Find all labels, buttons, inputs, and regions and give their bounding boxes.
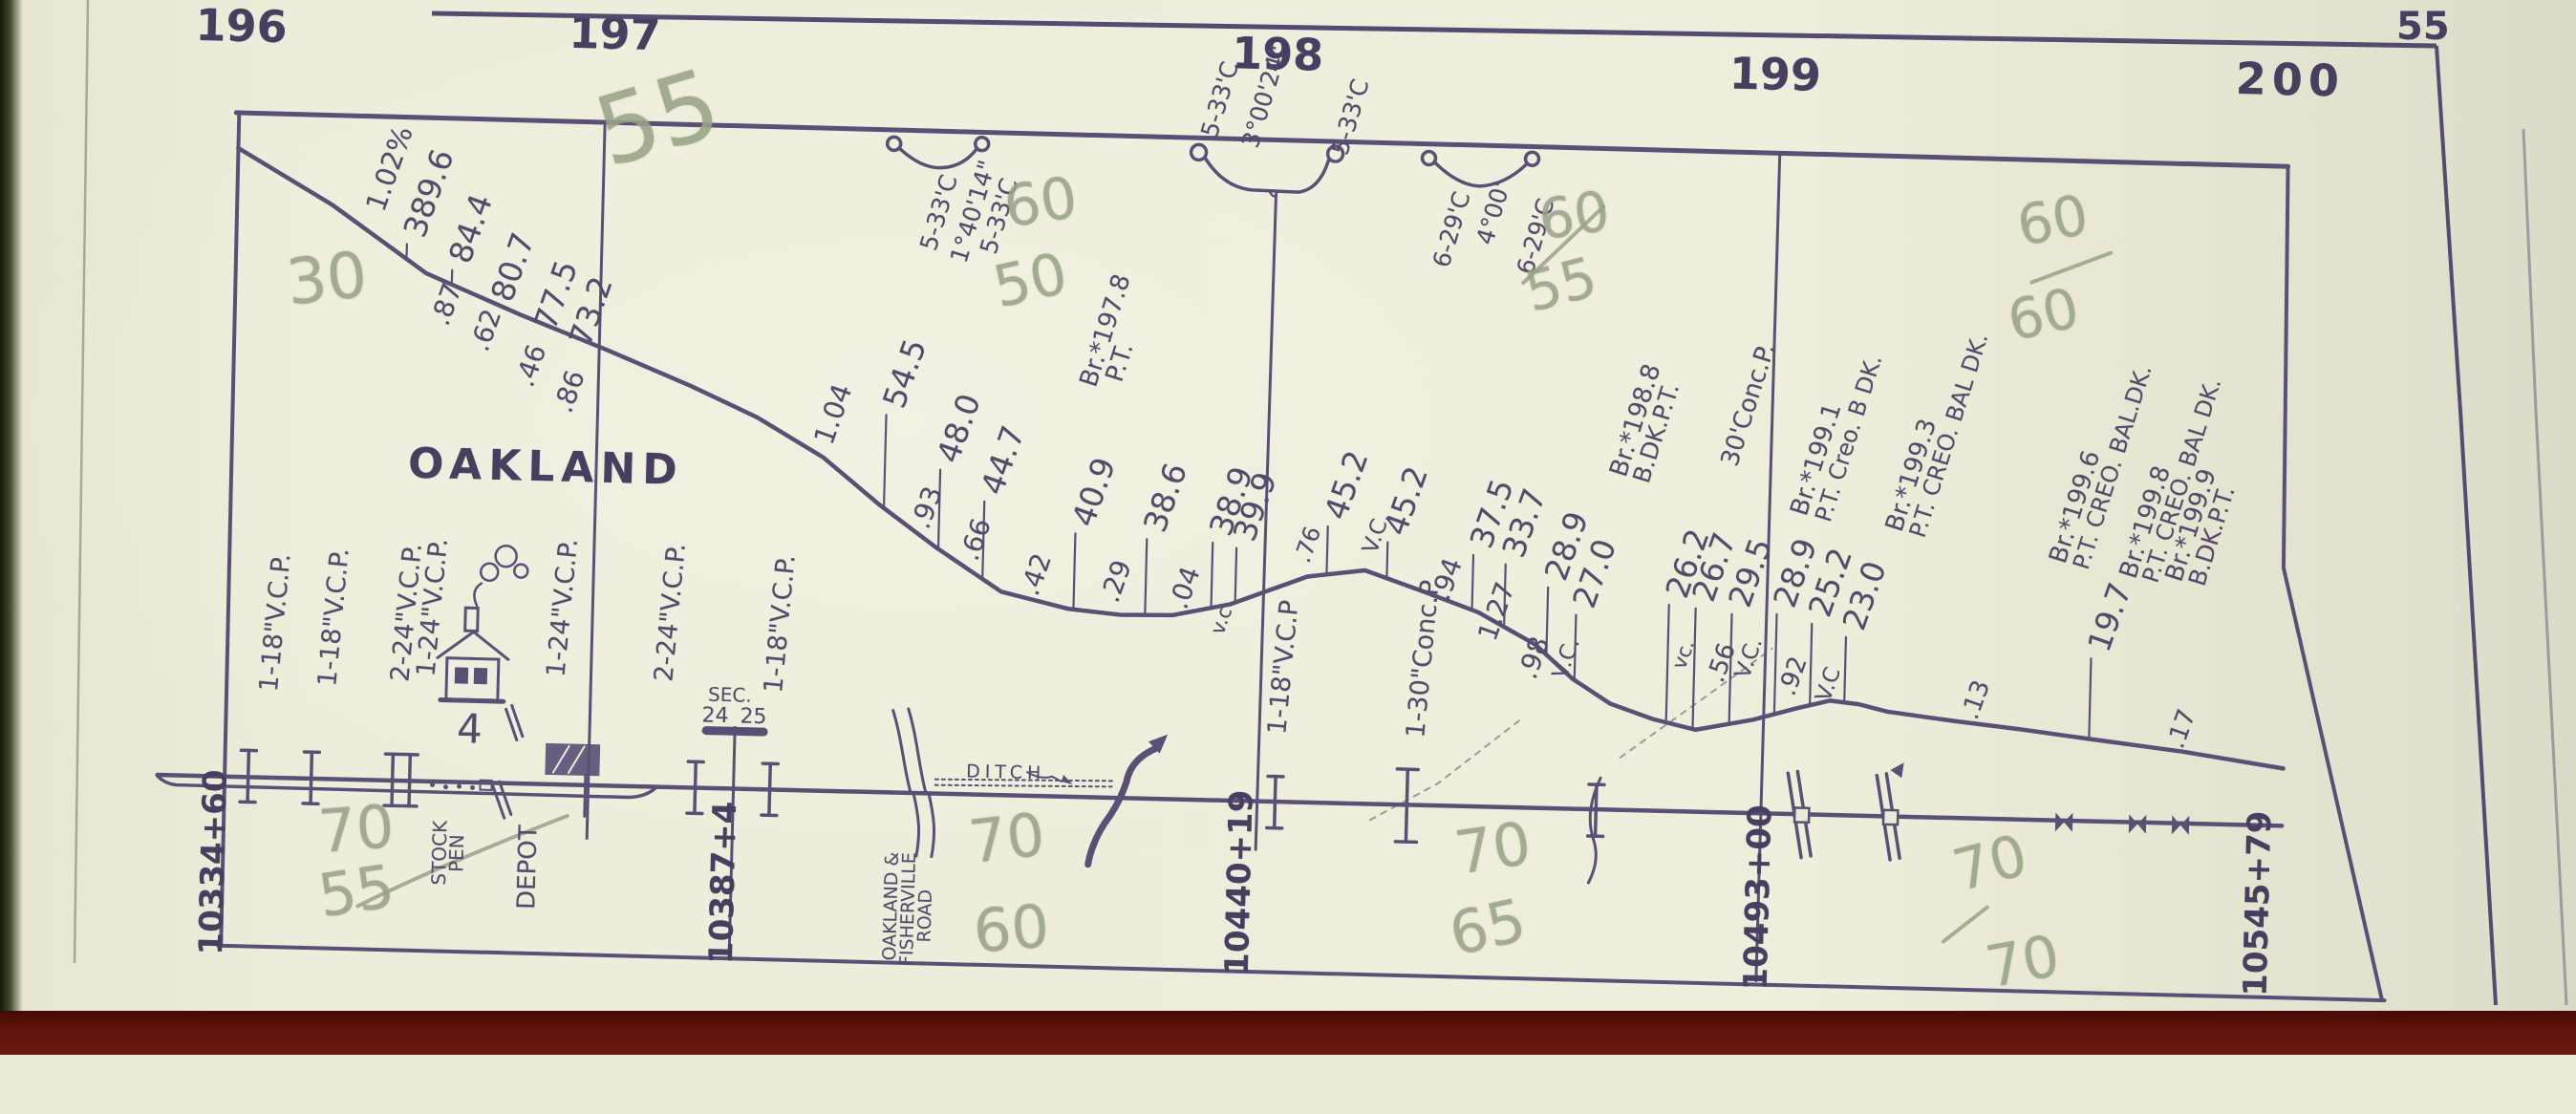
page-fold-line [75, 0, 88, 963]
page-borders [0, 0, 2576, 1055]
page-edge-line [2523, 129, 2566, 1005]
outer-border-right [2436, 46, 2496, 1005]
outer-border-top [432, 13, 2436, 46]
scan-edge-bottom [0, 1011, 2576, 1055]
scan-edge-left [0, 0, 23, 1015]
page-number: 55 [2396, 8, 2450, 46]
